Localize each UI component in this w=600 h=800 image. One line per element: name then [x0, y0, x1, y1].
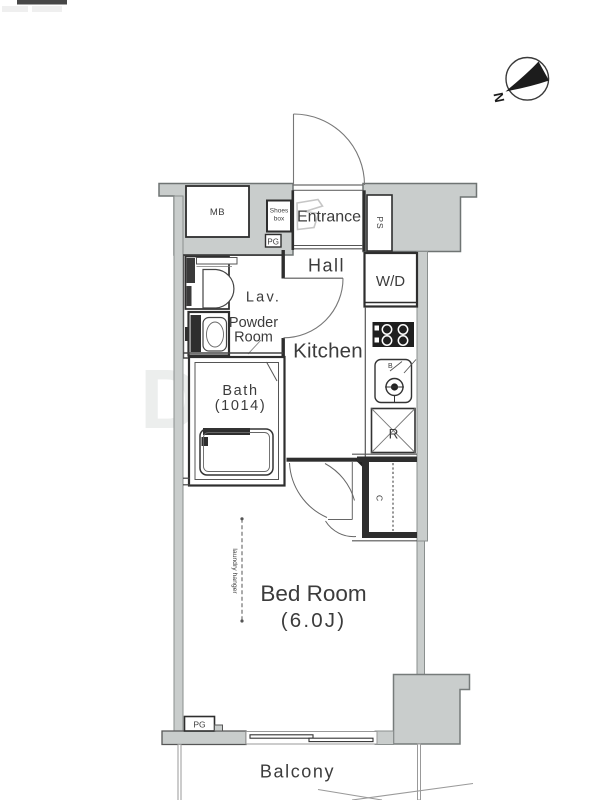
svg-text:Bath: Bath [222, 383, 258, 399]
svg-text:(1014): (1014) [215, 398, 267, 414]
svg-text:Room: Room [234, 330, 273, 346]
svg-text:(6.0J): (6.0J) [281, 609, 347, 632]
svg-text:R: R [389, 427, 399, 442]
svg-text:Hall: Hall [308, 256, 345, 276]
svg-text:C: C [375, 495, 385, 501]
svg-text:Balcony: Balcony [260, 762, 335, 782]
svg-text:PS: PS [375, 216, 385, 229]
svg-text:Kitchen: Kitchen [293, 340, 363, 363]
svg-text:Lav.: Lav. [246, 290, 281, 306]
svg-text:Entrance: Entrance [297, 209, 361, 226]
svg-text:W/D: W/D [376, 273, 405, 290]
svg-text:laundry hanger: laundry hanger [231, 548, 238, 594]
svg-text:Bed Room: Bed Room [260, 581, 366, 606]
svg-text:Shoes: Shoes [270, 208, 289, 215]
svg-text:B: B [388, 363, 393, 370]
svg-text:MB: MB [210, 207, 225, 218]
svg-text:box: box [274, 216, 285, 223]
svg-text:PG: PG [267, 238, 279, 247]
svg-text:PG: PG [193, 720, 205, 730]
